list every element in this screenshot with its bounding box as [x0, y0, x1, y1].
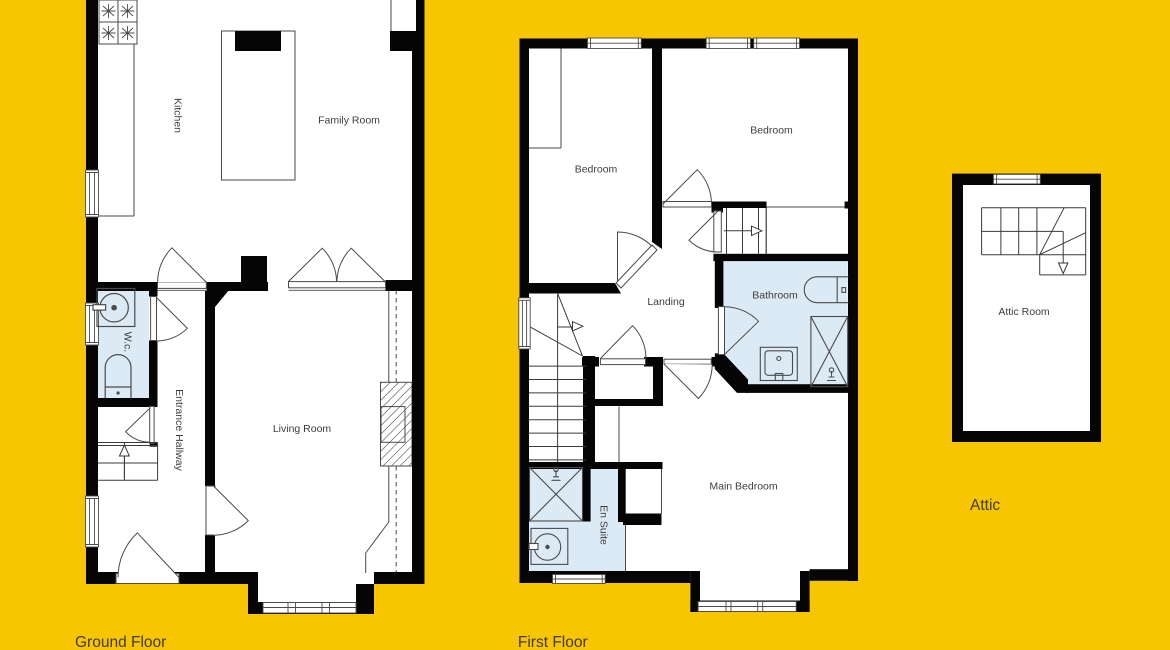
svg-text:En Suite: En Suite: [598, 505, 610, 545]
svg-text:Family Room: Family Room: [318, 115, 380, 127]
svg-text:Bedroom: Bedroom: [575, 164, 618, 176]
svg-text:Living Room: Living Room: [273, 423, 332, 435]
svg-text:Landing: Landing: [647, 296, 685, 308]
svg-text:Main Bedroom: Main Bedroom: [709, 481, 778, 493]
svg-text:Bathroom: Bathroom: [752, 290, 798, 302]
svg-text:Attic Room: Attic Room: [998, 306, 1050, 318]
svg-text:Entrance Hallway: Entrance Hallway: [173, 389, 185, 471]
svg-text:First Floor: First Floor: [518, 634, 588, 650]
svg-text:W.c.: W.c.: [122, 332, 134, 352]
svg-text:Ground Floor: Ground Floor: [75, 634, 166, 650]
svg-text:Bedroom: Bedroom: [750, 125, 793, 137]
svg-text:Attic: Attic: [970, 497, 1000, 514]
svg-text:Kitchen: Kitchen: [172, 98, 184, 133]
